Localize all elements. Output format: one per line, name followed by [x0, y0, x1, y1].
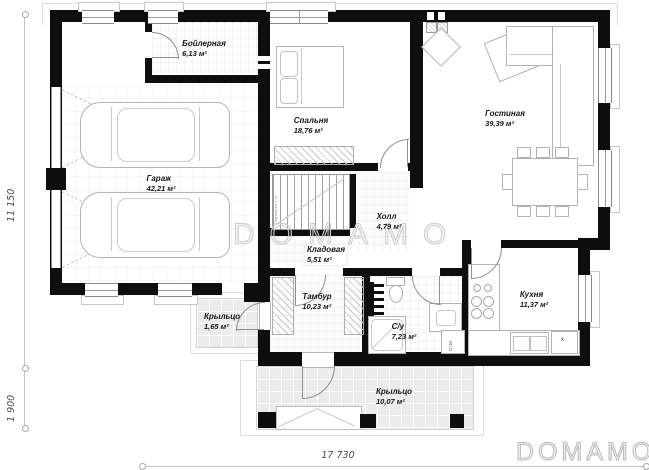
stove-knob [473, 284, 481, 292]
towel-radiator-fin [374, 291, 384, 294]
floor-plan: Подъем на 2 эт. Ст.М x [0, 0, 649, 470]
room-area: 5,51 м² [307, 255, 345, 265]
washing-machine [441, 330, 465, 354]
room-label-garage: Гараж 42,21 м² [147, 174, 176, 194]
window-living-1 [598, 48, 612, 103]
door-leaf-entrance [302, 366, 303, 398]
car-windshield-line [111, 197, 112, 251]
wall-spine-lower [258, 330, 270, 352]
dim-tick [139, 463, 146, 470]
porch-pillar [258, 412, 276, 428]
room-label-bedroom: Спальня 18,76 м² [294, 116, 328, 136]
room-area: 7,23 м² [392, 332, 417, 342]
room-label-tambour: Тамбур 10,23 м² [302, 292, 331, 312]
wardrobe-tambour-right [344, 277, 364, 335]
vanity-basin [436, 310, 456, 326]
room-area: 18,76 м² [294, 126, 328, 136]
towel-radiator-fin [374, 284, 384, 287]
dining-chair [577, 174, 588, 190]
room-label-living: Гостиная 39,39 м² [485, 109, 525, 129]
car-cabin [117, 108, 195, 162]
car-rear-line [199, 107, 200, 161]
room-label-kitchen: Кухня 11,37 м² [520, 290, 548, 310]
dim-tick [22, 365, 29, 372]
dim-tick [643, 463, 649, 470]
door-leaf-boiler [152, 57, 178, 58]
window-living-2 [598, 150, 612, 207]
dining-chair [536, 206, 550, 217]
wall-boiler-south [145, 75, 258, 83]
vent-slit [258, 64, 270, 69]
washing-machine-label: Ст.М [448, 332, 453, 351]
car-rear-line [199, 197, 200, 251]
room-label-bathroom: С/у 7,23 м² [392, 322, 417, 342]
room-name: Кладовая [307, 245, 345, 254]
window-bedroom [270, 10, 328, 24]
dim-tick [22, 11, 29, 18]
room-name: Крыльцо [204, 312, 240, 321]
car [80, 102, 230, 168]
kitchen-sink [510, 332, 549, 354]
window-garage-top-2 [148, 10, 178, 24]
room-name: Кухня [520, 290, 543, 299]
sofa-cushion-line [560, 64, 561, 160]
dining-table [512, 158, 578, 206]
wall-garage-bottom [50, 283, 222, 295]
porch-pillar [450, 414, 464, 428]
sofa-cushion-line [510, 54, 554, 55]
room-area: 39,39 м² [485, 119, 525, 129]
bed [276, 46, 344, 108]
roof-overhang-line [617, 3, 618, 25]
room-name: Тамбур [302, 292, 331, 301]
porch-pillar [360, 414, 376, 428]
room-area: 6,13 м² [182, 49, 226, 59]
garage-gate-1 [51, 87, 61, 168]
chimney-notch [427, 12, 434, 20]
room-area: 1,65 м² [204, 322, 240, 332]
towel-radiator-fin [374, 312, 384, 315]
pillow [280, 78, 298, 104]
wardrobe-tambour-left [272, 277, 294, 335]
stove-burner [483, 308, 494, 319]
stove-burner [471, 308, 482, 319]
door-leaf-bathroom [439, 276, 440, 304]
door-leaf-kitchen [471, 248, 472, 278]
car-windshield-line [111, 107, 112, 161]
blanket-line [301, 48, 302, 104]
wall-bathroom-north-b [440, 268, 462, 276]
wall-tambour-north-a [258, 268, 295, 276]
vanity [429, 303, 462, 332]
room-name: Спальня [294, 116, 328, 125]
room-name: Гараж [147, 174, 171, 183]
roof-overhang-line [42, 3, 43, 25]
wardrobe-bedroom [274, 146, 354, 165]
wall-bottom-left [258, 352, 302, 366]
pillow [280, 51, 298, 77]
stove-burner [483, 296, 494, 307]
room-name: Гостиная [485, 109, 525, 118]
door-leaf-storage [295, 275, 296, 305]
dining-chair [555, 147, 569, 158]
room-label-boiler: Бойлерная 6,13 м² [182, 39, 226, 59]
door-leaf-bedroom [407, 139, 408, 167]
sink-bowl [513, 336, 530, 351]
dim-line-bottom [142, 466, 646, 467]
fridge-label: x [561, 337, 564, 343]
room-area: 11,37 м² [520, 300, 548, 310]
room-area: 4,79 м² [377, 222, 402, 232]
door-arc-bedroom [380, 139, 409, 168]
room-name: С/у [392, 322, 404, 331]
vent-slit [258, 56, 270, 61]
stove-knob [484, 284, 492, 292]
wall-right-step [578, 238, 610, 250]
wall-kitchen-north-b [501, 240, 578, 248]
towel-radiator-fin [374, 298, 384, 301]
fireplace [421, 27, 461, 67]
dim-left-upper: 11 150 [6, 160, 17, 222]
dim-tick [22, 425, 29, 432]
dining-chair [502, 174, 513, 190]
stove-burner [471, 296, 482, 307]
room-label-hall: Холл 4,79 м² [377, 212, 402, 232]
dim-bottom: 17 730 [300, 450, 376, 461]
sink-bowl [530, 336, 547, 351]
brand-logo: DOMAMO [516, 438, 649, 466]
chimney-notch [438, 12, 445, 20]
dining-chair [517, 206, 531, 217]
room-area: 42,21 м² [147, 184, 176, 194]
room-name: Холл [377, 212, 397, 221]
dining-chair [555, 206, 569, 217]
wall-kitchen-north-a [462, 240, 471, 248]
window-garage-top-1 [82, 10, 114, 24]
room-name: Крыльцо [376, 387, 412, 396]
room-label-porch-main: Крыльцо 10,07 м² [376, 387, 412, 407]
window-garage-bottom-2 [158, 283, 192, 297]
dining-chair [517, 147, 531, 158]
dining-chair [536, 147, 550, 158]
window-garage-bottom-1 [85, 283, 118, 297]
room-label-porch-small: Крыльцо 1,65 м² [204, 312, 240, 332]
wall-bathroom-north-a [370, 268, 412, 276]
towel-radiator-fin [374, 305, 384, 308]
room-label-storage: Кладовая 5,51 м² [304, 244, 348, 266]
fridge [551, 331, 578, 354]
room-area: 10,07 м² [376, 397, 412, 407]
sofa-right [552, 26, 594, 166]
door-leaf-porch-small [236, 329, 264, 330]
car-cabin [117, 198, 195, 252]
car [80, 192, 230, 258]
wall-left-pier [46, 168, 66, 190]
garage-gate-2 [51, 190, 61, 268]
room-area: 10,23 м² [302, 302, 331, 312]
dim-left-lower: 1 900 [6, 374, 17, 422]
window-kitchen [578, 275, 592, 322]
room-name: Бойлерная [182, 39, 226, 48]
